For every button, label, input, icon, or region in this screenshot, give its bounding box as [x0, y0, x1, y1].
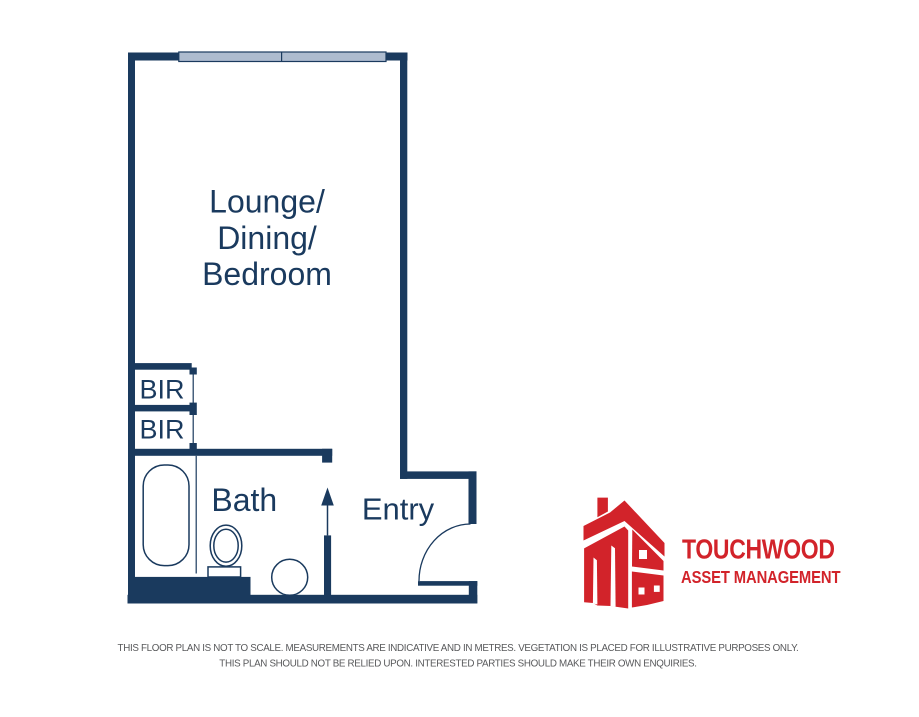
svg-text:ASSET MANAGEMENT: ASSET MANAGEMENT: [681, 568, 840, 588]
svg-text:TOUCHWOOD: TOUCHWOOD: [682, 534, 835, 564]
svg-text:BIR: BIR: [139, 415, 184, 445]
svg-text:Dining/: Dining/: [217, 220, 317, 256]
svg-text:BIR: BIR: [139, 375, 184, 405]
svg-text:Bedroom: Bedroom: [202, 256, 332, 292]
svg-text:Entry: Entry: [362, 492, 435, 527]
svg-text:THIS FLOOR PLAN IS NOT TO SCAL: THIS FLOOR PLAN IS NOT TO SCALE. MEASURE…: [118, 643, 799, 654]
svg-text:Lounge/: Lounge/: [209, 184, 325, 220]
svg-text:Bath: Bath: [211, 482, 277, 518]
svg-text:THIS PLAN SHOULD NOT BE RELIED: THIS PLAN SHOULD NOT BE RELIED UPON. INT…: [219, 659, 696, 670]
